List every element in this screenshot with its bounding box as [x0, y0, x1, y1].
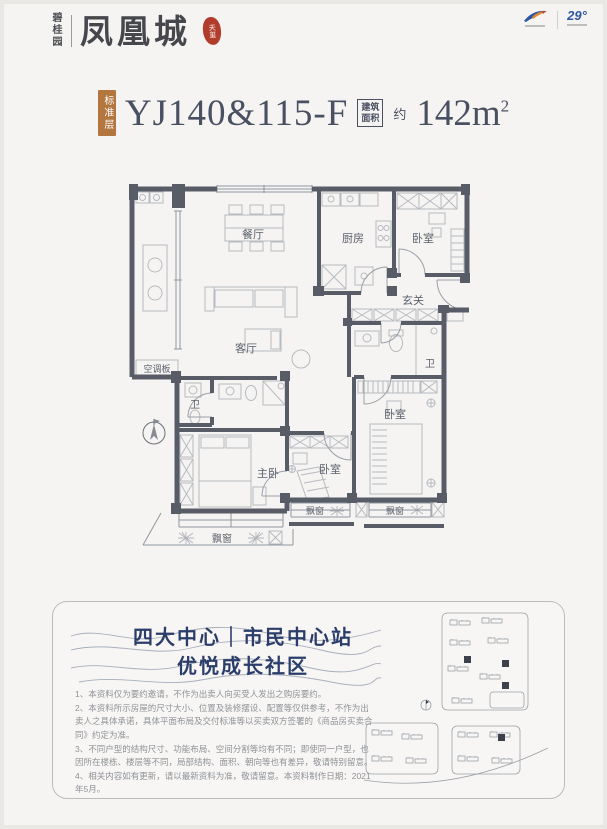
area-label-box: 建筑 面积: [357, 99, 383, 127]
disclaimer-item: 3、不同户型的结构尺寸、功能布局、空间分割等均有不同；即使同一户型，也因所在楼栋…: [75, 743, 375, 769]
room-label-bath-master: 卫: [190, 400, 200, 411]
logo-divider: [557, 11, 558, 29]
area-value: 142m2: [416, 95, 509, 132]
brand-lockup: 碧桂园 凤凰城 天玺: [48, 12, 221, 50]
seal-stamp-icon: 天玺: [202, 16, 222, 45]
floorplan-drawing: 餐厅 厨房 卧室 玄关 卫 卫 客厅 主卧 卧室 卧室 空调板 飘窗 飘窗 飘窗: [129, 181, 474, 553]
floor-type-badge: 标准层: [98, 90, 116, 136]
area-label-line2: 面积: [361, 113, 379, 124]
brand-swoosh-icon: [522, 9, 548, 23]
room-label-bay-right: 飘窗: [386, 505, 404, 516]
room-label-bedroom-mid: 卧室: [319, 462, 341, 476]
room-label-ac-panel: 空调板: [143, 363, 170, 374]
disclaimer-item: 4、相关内容如有更新，请以最新资料为准，敬请留意。本资料制作日期：2021年5月…: [75, 770, 375, 796]
partner-logos: 29°: [522, 9, 587, 29]
compass-icon: [143, 419, 165, 444]
brand-swoosh-logo: [522, 9, 548, 27]
room-label-foyer: 玄关: [402, 293, 424, 307]
unit-model: YJ140&115-F: [125, 95, 348, 132]
room-label-dining: 餐厅: [242, 227, 264, 241]
disclaimer-list: 1、本资料仅为要约邀请，不作为出卖人向买受人发出之购房要约。 2、本资料所示房屋…: [75, 688, 375, 797]
promo-headline-line1: 四大中心｜市民中心站: [89, 624, 397, 653]
area-exponent: 2: [501, 96, 510, 115]
room-label-living: 客厅: [235, 341, 257, 355]
area-number: 142m: [416, 93, 500, 134]
promo-panel: 四大中心｜市民中心站 优悦成长社区 1、本资料仅为要约邀请，不作为出卖人向买受人…: [52, 601, 565, 799]
brand-name-vertical: 碧桂园: [48, 12, 63, 50]
room-label-bay-master: 飘窗: [212, 532, 232, 545]
promo-headline-line2: 优悦成长社区: [89, 653, 397, 682]
disclaimer-item: 1、本资料仅为要约邀请，不作为出卖人向买受人发出之购房要约。: [75, 688, 375, 701]
room-label-master: 主卧: [257, 467, 279, 480]
site-plan-map: [362, 608, 552, 792]
brand-divider: [71, 15, 72, 47]
unit-title-row: 标准层 YJ140&115-F 建筑 面积 约 142m2: [4, 90, 603, 136]
doors-layer: [188, 249, 467, 496]
disclaimer-item: 2、本资料所示房屋的尺寸大小、位置及装修摆设、配置等仅供参考，不作为出卖人之具体…: [75, 702, 375, 742]
area-approx: 约: [393, 104, 406, 123]
brand-name-main: 凤凰城: [80, 15, 191, 48]
room-label-bath-main: 卫: [425, 359, 435, 370]
logo-caption-bar: [567, 24, 587, 26]
logo-caption-bar: [525, 25, 545, 27]
flyer-page: 碧桂园 凤凰城 天玺 29° 标准层 YJ140&115-F 建筑 面积 约 1…: [4, 4, 603, 825]
degree-logo-text: 29°: [567, 9, 587, 22]
windows-layer: [143, 185, 431, 545]
room-label-bedroom-right: 卧室: [384, 407, 406, 421]
area-label-line1: 建筑: [361, 102, 379, 113]
room-label-bay-mid: 飘窗: [306, 505, 324, 516]
room-label-kitchen: 厨房: [342, 232, 364, 245]
room-label-bedroom-top: 卧室: [412, 231, 434, 245]
seal-text: 天玺: [208, 24, 216, 38]
promo-headline: 四大中心｜市民中心站 优悦成长社区: [89, 624, 397, 682]
degree-logo: 29°: [567, 9, 587, 26]
